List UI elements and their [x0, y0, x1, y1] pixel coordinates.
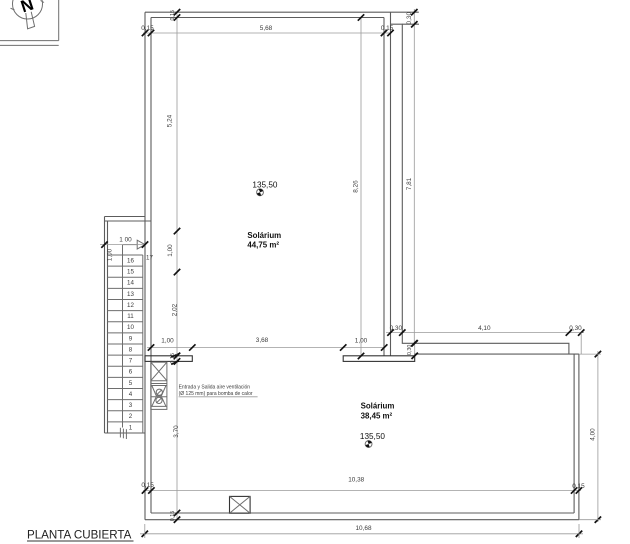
- svg-text:1 00: 1 00: [119, 237, 132, 244]
- svg-text:38,45 m²: 38,45 m²: [361, 411, 393, 420]
- svg-text:4,10: 4,10: [478, 325, 491, 332]
- svg-text:44,75 m²: 44,75 m²: [247, 240, 279, 249]
- svg-text:0,15: 0,15: [381, 25, 394, 32]
- svg-text:3: 3: [129, 402, 133, 409]
- svg-text:6: 6: [129, 369, 133, 376]
- svg-text:7: 7: [129, 358, 133, 365]
- svg-text:0,15: 0,15: [170, 353, 176, 364]
- svg-text:0,30: 0,30: [406, 12, 413, 25]
- svg-text:10,68: 10,68: [356, 525, 372, 532]
- svg-text:0,15: 0,15: [141, 482, 154, 489]
- svg-text:1,00: 1,00: [161, 338, 174, 345]
- svg-text:Entrada y Salida aire ventilac: Entrada y Salida aire ventilación: [179, 384, 251, 390]
- svg-text:0,30: 0,30: [407, 345, 413, 356]
- svg-text:10,38: 10,38: [348, 477, 364, 484]
- svg-text:Solárium: Solárium: [247, 231, 281, 240]
- svg-text:0,15: 0,15: [170, 511, 176, 522]
- svg-text:13: 13: [127, 291, 134, 298]
- svg-text:3,70: 3,70: [173, 425, 180, 438]
- svg-text:1,00: 1,00: [355, 338, 368, 345]
- svg-text:2: 2: [129, 413, 133, 420]
- svg-text:5,24: 5,24: [167, 114, 174, 127]
- svg-text:1: 1: [129, 424, 133, 431]
- svg-text:1,00: 1,00: [107, 248, 114, 261]
- svg-text:2,02: 2,02: [172, 303, 179, 316]
- svg-text:PLANTA CUBIERTA: PLANTA CUBIERTA: [27, 529, 132, 542]
- svg-text:11: 11: [127, 313, 134, 320]
- svg-text:10: 10: [127, 324, 134, 331]
- svg-text:8: 8: [129, 346, 133, 353]
- svg-text:135,50: 135,50: [252, 180, 277, 189]
- svg-text:12: 12: [127, 302, 134, 309]
- svg-text:5,68: 5,68: [260, 25, 273, 32]
- svg-text:4: 4: [129, 391, 133, 398]
- svg-text:4,00: 4,00: [589, 428, 596, 441]
- svg-text:9: 9: [129, 335, 133, 342]
- svg-text:8,26: 8,26: [353, 180, 360, 193]
- svg-text:135,50: 135,50: [360, 432, 385, 441]
- svg-text:0,15: 0,15: [170, 10, 176, 21]
- svg-text:17: 17: [146, 254, 153, 261]
- svg-text:0,15: 0,15: [572, 483, 585, 490]
- svg-text:1,00: 1,00: [167, 244, 174, 257]
- svg-text:(Ø 125 mm) para bomba de calor: (Ø 125 mm) para bomba de calor: [179, 391, 253, 397]
- svg-text:14: 14: [127, 280, 134, 287]
- svg-text:0,30: 0,30: [569, 325, 582, 332]
- svg-text:3,68: 3,68: [256, 337, 269, 344]
- svg-text:Solárium: Solárium: [361, 402, 395, 411]
- svg-text:16: 16: [127, 257, 134, 264]
- svg-text:5: 5: [129, 380, 133, 387]
- svg-text:0,15: 0,15: [141, 25, 154, 32]
- svg-text:15: 15: [127, 269, 134, 276]
- svg-text:7,81: 7,81: [406, 177, 413, 190]
- svg-text:0,30: 0,30: [390, 325, 403, 332]
